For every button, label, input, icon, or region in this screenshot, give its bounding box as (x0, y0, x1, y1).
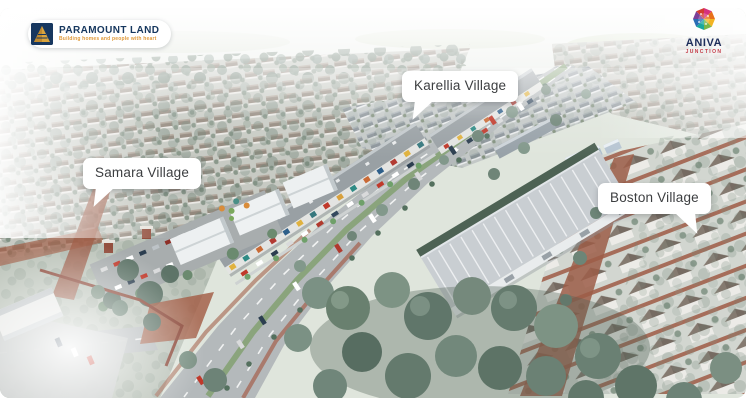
callout-karellia-village: Karellia Village (402, 71, 518, 102)
aniva-subtitle: JUNCTION (676, 50, 732, 56)
callout-pointer-boston (676, 212, 697, 236)
callout-boston-village: Boston Village (598, 183, 711, 214)
paramount-land-name: PARAMOUNT LAND (59, 26, 159, 37)
callout-samara-village: Samara Village (83, 158, 201, 189)
callout-label-karellia: Karellia Village (414, 78, 506, 93)
callout-pointer-samara (94, 187, 113, 209)
callout-pointer-karellia (413, 100, 432, 122)
paramount-land-tagline: Building homes and people with heart (59, 37, 159, 43)
callout-label-samara: Samara Village (95, 165, 189, 180)
callout-label-boston: Boston Village (610, 190, 699, 205)
aniva-sphere-icon (691, 6, 717, 32)
slide: PARAMOUNT LAND Building homes and people… (0, 0, 746, 420)
paramount-land-logo: PARAMOUNT LAND Building homes and people… (28, 20, 171, 48)
aniva-name: ANIVA (676, 38, 732, 50)
paramount-land-logo-icon (31, 23, 53, 45)
aniva-junction-logo: ANIVA JUNCTION (676, 6, 732, 55)
